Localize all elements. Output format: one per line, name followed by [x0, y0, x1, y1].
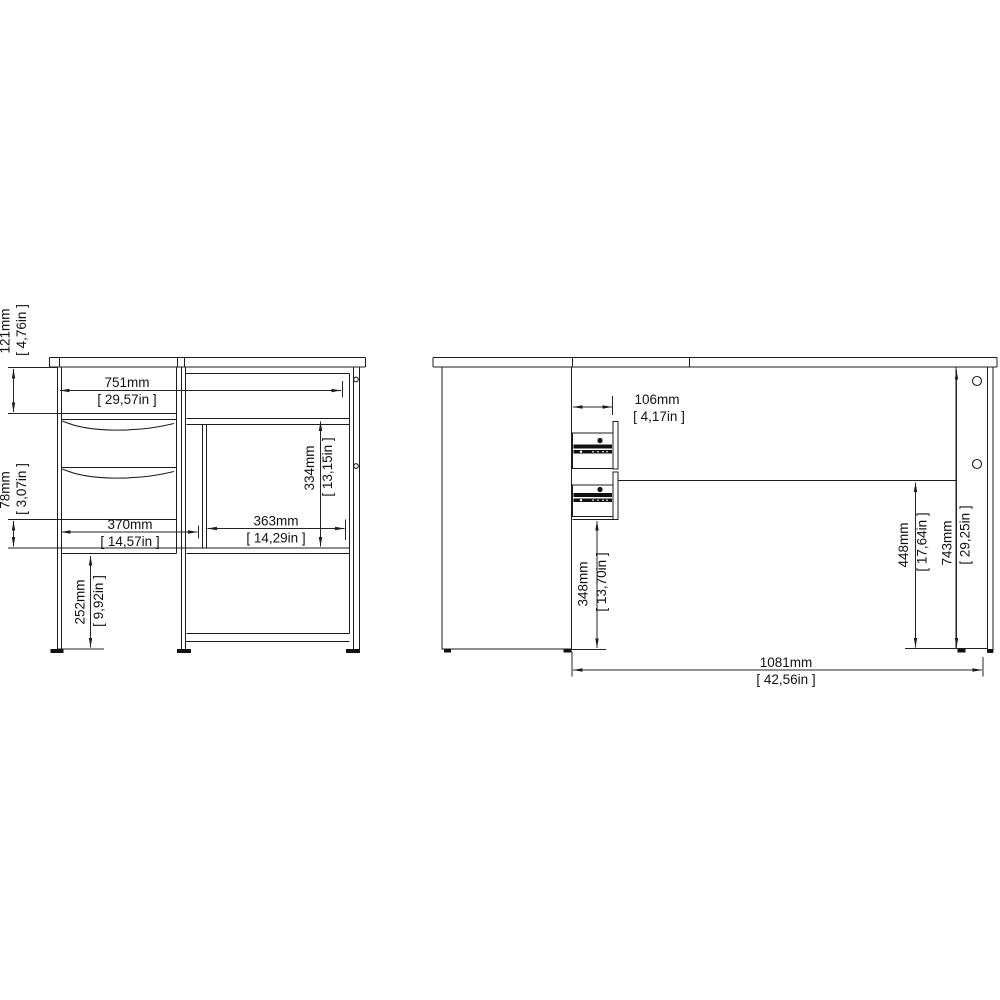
- dim-743-mm-label: 743mm: [940, 520, 955, 565]
- dimension-106mm: 106mm [ 4,17in ]: [573, 392, 685, 424]
- dim-1081-mm-label: 1081mm: [760, 655, 813, 670]
- side-view: 106mm [ 4,17in ] 348mm [ 13,70in ] 448mm…: [433, 358, 997, 688]
- dim-370-mm-label: 370mm: [107, 517, 152, 532]
- foot: [51, 649, 64, 653]
- dim-743-in-label: [ 29,25in ]: [958, 505, 973, 564]
- cam-lock-circle: [973, 460, 982, 469]
- rail-hole: [602, 499, 604, 501]
- dim-348-in-label: [ 13,70in ]: [594, 552, 609, 611]
- side-desktop-panel: [433, 358, 997, 368]
- right-edge-strip: [988, 367, 994, 653]
- dim-334-mm-label: 334mm: [302, 445, 317, 490]
- dim-751-mm-label: 751mm: [104, 375, 149, 390]
- dimension-448mm: 448mm [ 17,64in ]: [896, 483, 930, 648]
- front-desktop-panel: [50, 358, 366, 368]
- dim-334-in-label: [ 13,15in ]: [320, 437, 335, 496]
- drawing-canvas: 121mm [ 4,76in ] 78mm [ 3,07in ] 751mm […: [0, 0, 1000, 1000]
- cam-lock-circle: [354, 377, 359, 382]
- rail-hole: [592, 499, 594, 501]
- rail-hole: [592, 451, 594, 453]
- dim-751-in-label: [ 29,57in ]: [97, 392, 156, 407]
- foot: [346, 649, 360, 653]
- rail-hole: [606, 451, 608, 453]
- dim-78-mm-label: 78mm: [0, 471, 13, 509]
- dim-252-mm-label: 252mm: [73, 579, 88, 624]
- cam-lock-circle: [354, 464, 359, 469]
- pedestal-side-panel: [442, 367, 572, 649]
- screw-dot: [597, 438, 602, 443]
- foot: [958, 649, 966, 653]
- dim-78-in-label: [ 3,07in ]: [14, 463, 29, 515]
- rail-hole: [580, 451, 582, 453]
- rail-hole: [580, 499, 582, 501]
- dim-363-in-label: [ 14,29in ]: [246, 531, 305, 546]
- dim-106-mm-label: 106mm: [634, 392, 679, 407]
- dim-348-mm-label: 348mm: [576, 561, 591, 606]
- dimension-78mm: 78mm [ 3,07in ]: [0, 463, 29, 546]
- rail-hole: [602, 451, 604, 453]
- foot: [988, 649, 994, 653]
- slide-rail: [574, 445, 613, 449]
- extension-lines: [8, 368, 61, 414]
- drawer-handle-curves: [63, 421, 175, 478]
- dimension-370mm: 370mm [ 14,57in ]: [61, 517, 199, 549]
- dimension-334mm: 334mm [ 13,15in ]: [302, 422, 335, 547]
- slide-rail: [574, 493, 613, 497]
- technical-drawing: 121mm [ 4,76in ] 78mm [ 3,07in ] 751mm […: [0, 0, 1000, 1000]
- drawer-slide-assembly-top: [573, 433, 614, 469]
- dim-121-in-label: [ 4,76in ]: [14, 304, 29, 356]
- dimension-363mm: 363mm [ 14,29in ]: [208, 514, 346, 546]
- foot: [177, 649, 191, 653]
- dimension-348mm: 348mm [ 13,70in ]: [572, 521, 610, 650]
- dim-448-in-label: [ 17,64in ]: [915, 512, 930, 571]
- front-left-side-panel: [58, 367, 62, 649]
- rail-hole: [597, 451, 599, 453]
- drawer-front-edge: [613, 472, 618, 520]
- foot: [564, 649, 572, 653]
- dim-1081-in-label: [ 42,56in ]: [756, 672, 815, 687]
- rail-hole: [597, 499, 599, 501]
- dimension-252mm: 252mm [ 9,92in ]: [62, 556, 106, 649]
- foot: [444, 649, 451, 653]
- dim-370-in-label: [ 14,57in ]: [100, 534, 159, 549]
- dimension-121mm: 121mm [ 4,76in ]: [0, 304, 61, 413]
- front-frame-lines: [8, 367, 360, 649]
- dim-106-in-label: [ 4,17in ]: [633, 409, 685, 424]
- drawer-slide-assembly-bottom: [573, 485, 614, 517]
- front-view: 121mm [ 4,76in ] 78mm [ 3,07in ] 751mm […: [0, 304, 366, 653]
- screw-dot: [597, 487, 602, 492]
- dimension-1081mm: 1081mm [ 42,56in ]: [572, 652, 983, 688]
- dim-121-mm-label: 121mm: [0, 308, 13, 353]
- dim-448-mm-label: 448mm: [896, 522, 911, 567]
- dim-363-mm-label: 363mm: [253, 514, 298, 529]
- dim-252-in-label: [ 9,92in ]: [91, 575, 106, 627]
- drawer-front-edge: [613, 422, 618, 470]
- dimension-743mm: 743mm [ 29,25in ]: [940, 370, 973, 648]
- cam-lock-circle: [973, 377, 982, 386]
- rail-hole: [606, 499, 608, 501]
- dimension-751mm: 751mm [ 29,57in ]: [60, 375, 343, 407]
